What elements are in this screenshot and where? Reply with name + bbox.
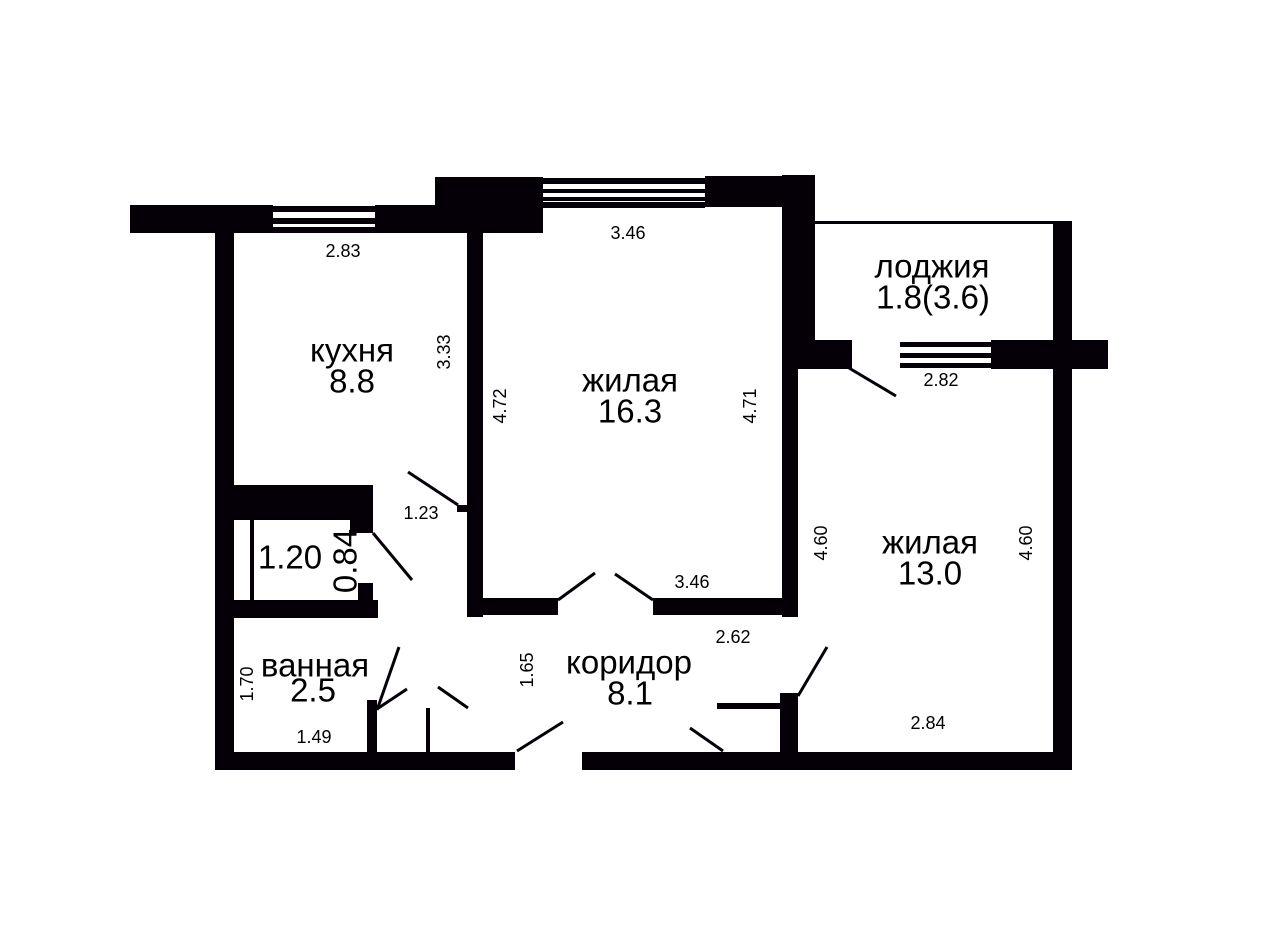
- room-area-living-small: 13.0: [898, 557, 962, 590]
- dimension-closet-depth: 0.84: [329, 529, 362, 593]
- corridor-door-swing: [690, 728, 723, 751]
- dimension-living1-right: 4.71: [741, 388, 759, 423]
- loggia-top-line: [815, 221, 1055, 224]
- kitchen-door-swing: [408, 472, 458, 505]
- wall-top-corner-block: [435, 177, 543, 233]
- dimension-corridor-right: 2.62: [715, 628, 750, 646]
- dimension-bathroom-left: 1.70: [238, 666, 256, 701]
- room-area-loggia: 1.8(3.6): [876, 281, 990, 314]
- dimension-living1-top: 3.46: [610, 224, 645, 242]
- loggia-window: [900, 363, 991, 368]
- living1-window: [543, 189, 705, 193]
- toilet-partition-line: [426, 708, 430, 752]
- loggia-window: [900, 342, 991, 347]
- kitchen-window: [273, 227, 375, 233]
- room-area-kitchen: 8.8: [329, 365, 375, 398]
- wall-corridor-top-right: [653, 598, 782, 615]
- wall-kitchen-living1-divider: [467, 207, 483, 617]
- living1-window: [543, 197, 705, 201]
- closet-door-swing: [373, 533, 412, 580]
- wall-bathroom-top: [215, 600, 378, 618]
- floorplan-drawing: [0, 0, 1265, 949]
- toilet-door-swing: [438, 687, 468, 708]
- wall-kitchen-top-right: [375, 205, 435, 233]
- wall-bathroom-right-stub: [367, 700, 377, 752]
- dimension-kitchen-right: 3.33: [435, 334, 453, 369]
- living1-window: [543, 202, 705, 208]
- wall-top-left-stub: [130, 205, 273, 233]
- room-area-corridor: 8.1: [607, 677, 653, 710]
- living1-opening-left-swing: [558, 573, 595, 600]
- wall-right-stub: [1072, 340, 1108, 369]
- room-area-bathroom: 2.5: [290, 674, 336, 707]
- dimension-living2-left: 4.60: [812, 525, 830, 560]
- wall-kitchen-bottom: [215, 485, 373, 520]
- entrance-door-swing: [517, 722, 563, 751]
- wall-loggia-bottom-left: [815, 340, 852, 369]
- dimension-loggia-bottom: 2.82: [923, 371, 958, 389]
- wall-living2-left-stub: [780, 693, 798, 752]
- dimension-kitchen-top: 2.83: [325, 242, 360, 260]
- dimension-living2-bottom: 2.84: [910, 714, 945, 732]
- dimension-corridor-left: 1.65: [518, 652, 536, 687]
- dimension-living1-left: 4.72: [491, 388, 509, 423]
- wall-bottom-left: [215, 752, 515, 770]
- wall-bottom-right: [582, 752, 1072, 770]
- loggia-window: [900, 353, 991, 358]
- dimension-closet-width: 1.20: [258, 541, 322, 574]
- dimension-living1-bottom: 3.46: [674, 573, 709, 591]
- door-panel-corridor: [717, 703, 780, 709]
- wall-corridor-top-left: [483, 598, 558, 615]
- kitchen-window: [273, 218, 375, 224]
- dimension-living2-right: 4.60: [1017, 525, 1035, 560]
- dimension-bathroom-bottom: 1.49: [296, 728, 331, 746]
- living1-window: [543, 178, 705, 184]
- loggia-door-swing: [849, 368, 896, 396]
- wall-right-outer: [1053, 221, 1072, 770]
- wall-kitchen-door-stub: [457, 505, 467, 512]
- wall-living1-loggia-column: [782, 175, 815, 369]
- kitchen-window: [273, 206, 375, 212]
- closet-partition-line: [250, 520, 254, 600]
- living1-opening-right-swing: [615, 574, 653, 600]
- living2-door-swing: [798, 647, 827, 696]
- wall-living2-left-upper: [782, 369, 798, 617]
- wall-loggia-bottom-right: [991, 340, 1053, 369]
- dimension-vestibule-width: 1.23: [403, 504, 438, 522]
- floorplan-canvas: кухня 8.8 жилая 16.3 лоджия 1.8(3.6) жил…: [0, 0, 1265, 949]
- room-area-living-large: 16.3: [598, 395, 662, 428]
